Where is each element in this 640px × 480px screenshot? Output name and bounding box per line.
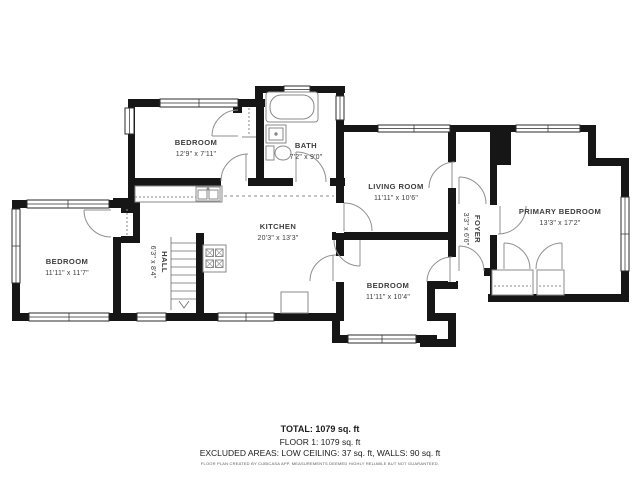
- window: [218, 313, 274, 321]
- room-dims-hall: 6'3" x 8'4": [149, 246, 156, 279]
- door-arc: [459, 246, 484, 271]
- room-label-hall-group: HALL 6'3" x 8'4": [149, 246, 169, 279]
- floor-plan-canvas: BEDROOM 12'9" x 7'11" BATH 7'2" x 9'0" L…: [0, 0, 640, 480]
- window: [12, 209, 20, 283]
- room-label-foyer-group: FOYER 3'3" x 6'6": [462, 213, 482, 246]
- window: [27, 200, 109, 208]
- door-arc: [504, 243, 530, 269]
- room-dims-bath: 7'2" x 9'0": [290, 154, 323, 161]
- excluded-areas-text: EXCLUDED AREAS: LOW CEILING: 37 sq. ft, …: [0, 448, 640, 458]
- room-dims-living-room: 11'11" x 10'6": [374, 195, 418, 202]
- window: [29, 313, 109, 321]
- room-label-primary-bedroom: PRIMARY BEDROOM: [519, 207, 601, 216]
- total-area-text: TOTAL: 1079 sq. ft: [0, 424, 640, 434]
- door-arc: [221, 154, 248, 181]
- bathtub-icon: [266, 92, 318, 122]
- window: [621, 197, 629, 271]
- room-dims-primary-bedroom: 13'3" x 17'2": [540, 220, 581, 227]
- room-label-kitchen: KITCHEN: [260, 222, 297, 231]
- door-arc: [344, 203, 372, 231]
- door-arc: [212, 110, 238, 136]
- floor-plan-page: BEDROOM 12'9" x 7'11" BATH 7'2" x 9'0" L…: [0, 0, 640, 480]
- room-label-bedroom-top: BEDROOM: [175, 138, 217, 147]
- window: [348, 335, 416, 343]
- fridge-icon: [281, 292, 308, 313]
- room-dims-kitchen: 20'3" x 13'3": [258, 235, 299, 242]
- room-dims-bedroom-top: 12'9" x 7'11": [176, 151, 217, 158]
- room-label-bedroom-bottom: BEDROOM: [367, 281, 409, 290]
- floor1-area-text: FLOOR 1: 1079 sq. ft: [0, 437, 640, 447]
- kitchen-counter: [135, 186, 222, 202]
- room-dims-bedroom-bottom: 11'11" x 10'4": [366, 294, 410, 301]
- closet-primary-left: [492, 270, 533, 295]
- window: [125, 108, 134, 134]
- stairs-icon: [171, 237, 196, 310]
- closet-top-bedroom: [242, 108, 256, 137]
- stove-icon: [203, 245, 226, 272]
- room-dims-foyer: 3'3" x 6'6": [462, 213, 469, 246]
- window: [378, 125, 450, 132]
- disclaimer-text: FLOOR PLAN CREATED BY CUBICASA APP. MEAS…: [0, 461, 640, 466]
- closet-primary-right: [537, 270, 564, 295]
- room-label-foyer: FOYER: [473, 215, 482, 243]
- door-arc: [459, 177, 486, 204]
- window: [516, 125, 580, 132]
- room-label-bath: BATH: [295, 141, 317, 150]
- window: [160, 99, 238, 107]
- room-label-hall: HALL: [160, 251, 169, 273]
- room-label-bedroom-left: BEDROOM: [46, 257, 88, 266]
- room-dims-bedroom-left: 11'11" x 11'7": [45, 270, 89, 277]
- toilet-icon: [266, 146, 291, 160]
- window: [137, 313, 166, 321]
- door-arc: [536, 243, 562, 269]
- door-arc: [310, 255, 336, 281]
- door-arc: [84, 210, 111, 237]
- window: [336, 96, 344, 120]
- bathroom-sink-icon: [266, 125, 286, 143]
- room-label-living-room: LIVING ROOM: [368, 182, 423, 191]
